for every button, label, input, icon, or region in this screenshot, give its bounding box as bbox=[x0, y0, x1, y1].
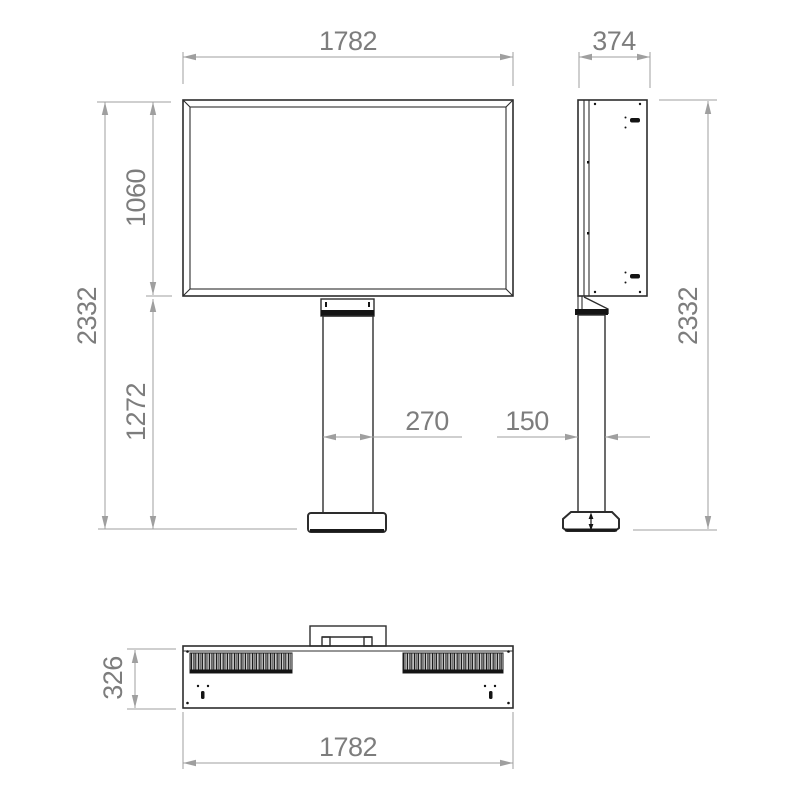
dim-side-depth: 374 bbox=[579, 26, 650, 88]
keyhole-mark bbox=[201, 691, 205, 699]
vent-grille-right bbox=[403, 653, 503, 673]
dim-front-width-label: 1782 bbox=[319, 26, 377, 56]
collar-front-bar bbox=[321, 310, 374, 316]
screw-mark bbox=[587, 161, 590, 164]
dim-pole-height: 1272 bbox=[121, 299, 156, 529]
side-view bbox=[563, 100, 647, 531]
collar-tick-right bbox=[368, 302, 370, 307]
screw-mark bbox=[197, 685, 199, 687]
collar-tick-left bbox=[325, 302, 327, 307]
pole-bracket-tab-right bbox=[364, 637, 372, 646]
dim-total-height-left-label: 2332 bbox=[72, 287, 102, 345]
vent-grille-left bbox=[190, 653, 292, 673]
corner-screw-mark bbox=[186, 702, 189, 705]
collar-side-bar bbox=[575, 309, 608, 315]
display-front-outer bbox=[183, 100, 513, 296]
screw-mark bbox=[207, 685, 209, 687]
dim-pole-width: 270 bbox=[323, 406, 462, 440]
corner-screw-mark bbox=[507, 650, 510, 653]
screw-mark bbox=[639, 291, 641, 293]
screw-mark bbox=[639, 103, 641, 105]
dim-total-height-right-label: 2332 bbox=[673, 287, 703, 345]
dim-pole-depth: 150 bbox=[497, 406, 650, 440]
dim-screen-height: 1060 bbox=[121, 102, 172, 296]
dim-top-width-label: 1782 bbox=[319, 732, 377, 762]
cabinet-side bbox=[578, 100, 647, 296]
dim-pole-depth-label: 150 bbox=[505, 406, 549, 436]
dim-screen-height-label: 1060 bbox=[121, 169, 151, 227]
dim-side-depth-label: 374 bbox=[592, 26, 636, 56]
dim-pole-width-label: 270 bbox=[405, 406, 449, 436]
drawing-svg: 1782 374 2332 1060 bbox=[0, 0, 800, 800]
dim-top-depth: 326 bbox=[98, 649, 176, 709]
top-view bbox=[183, 626, 513, 708]
keyhole-mark bbox=[489, 691, 493, 699]
pole-side bbox=[578, 315, 605, 512]
corner-screw-mark bbox=[186, 650, 189, 653]
front-view bbox=[183, 100, 513, 532]
corner-screw-mark bbox=[507, 702, 510, 705]
dim-front-width: 1782 bbox=[183, 26, 513, 86]
pole-front bbox=[323, 316, 373, 513]
screw-mark bbox=[594, 103, 596, 105]
screw-mark bbox=[494, 685, 496, 687]
screw-mark bbox=[484, 685, 486, 687]
technical-drawing-page: 1782 374 2332 1060 bbox=[0, 0, 800, 800]
screw-mark bbox=[587, 232, 590, 235]
dim-pole-height-label: 1272 bbox=[121, 383, 151, 441]
screw-mark bbox=[594, 291, 596, 293]
pole-bracket-tab-left bbox=[322, 637, 330, 646]
dim-top-width: 1782 bbox=[183, 712, 513, 769]
dim-top-depth-label: 326 bbox=[98, 656, 128, 700]
